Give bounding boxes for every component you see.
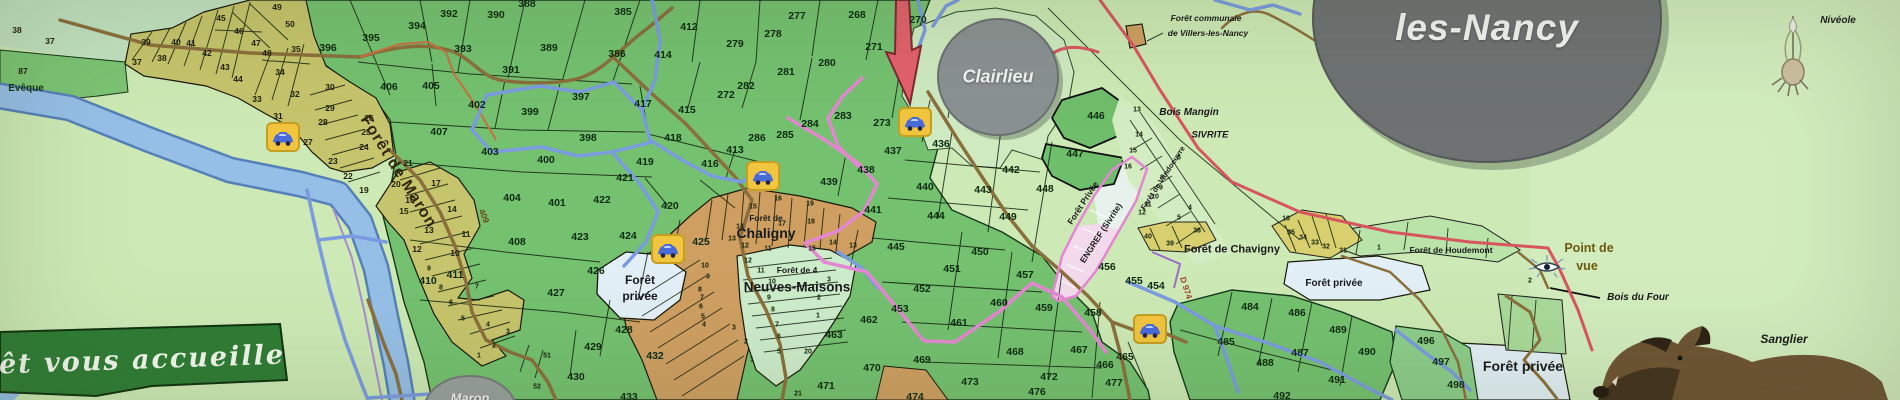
parcel-number: 286 bbox=[748, 133, 766, 144]
parking-icon bbox=[898, 107, 932, 137]
parcel-number: 2 bbox=[817, 295, 821, 302]
parcel-number: 426 bbox=[587, 266, 605, 277]
welcome-banner-text: êt vous accueille bbox=[0, 340, 286, 381]
parcel-number: 7 bbox=[475, 284, 479, 291]
parcel-number: 399 bbox=[521, 107, 539, 118]
parcel-number: 418 bbox=[664, 133, 682, 144]
parcel-number: 496 bbox=[1417, 336, 1435, 347]
car-icon bbox=[270, 127, 296, 147]
parcel-number: 273 bbox=[873, 118, 891, 129]
parcel-number: 2 bbox=[492, 343, 496, 350]
parking-icon bbox=[266, 122, 300, 152]
parcel-number: 14 bbox=[1135, 132, 1143, 139]
parcel-number: 398 bbox=[579, 133, 597, 144]
parcel-number: 11 bbox=[757, 268, 764, 275]
parcel-number: 447 bbox=[1066, 149, 1084, 160]
parcel-number: 427 bbox=[547, 288, 565, 299]
parcel-number: 445 bbox=[887, 242, 905, 253]
parcel-number: 16 bbox=[1124, 164, 1132, 171]
parcel-number: 473 bbox=[961, 377, 979, 388]
parcel-number: 453 bbox=[891, 304, 909, 315]
parcel-number: 457 bbox=[1016, 270, 1034, 281]
parcel-number: 391 bbox=[502, 65, 520, 76]
parcel-number: 51 bbox=[543, 353, 551, 360]
parcel-number: 38 bbox=[12, 26, 21, 35]
parking-icon bbox=[746, 161, 780, 191]
parcel-number: 12 bbox=[412, 245, 421, 254]
parcel-number: 490 bbox=[1358, 347, 1376, 358]
parcel-number: 28 bbox=[318, 118, 327, 127]
map-label: Forêt de Houdemont bbox=[1409, 246, 1492, 255]
parcel-number: 400 bbox=[537, 155, 555, 166]
map-label: privée bbox=[622, 290, 657, 302]
parcel-number: 491 bbox=[1328, 375, 1346, 386]
parcel-number: 45 bbox=[216, 14, 225, 23]
parcel-number: 412 bbox=[680, 22, 698, 33]
parcel-number: 31 bbox=[273, 112, 282, 121]
parcel-number: 424 bbox=[619, 231, 637, 242]
map-label: Forêt de 4 bbox=[777, 266, 818, 275]
parcel-number: 428 bbox=[615, 325, 633, 336]
parcel-number: 24 bbox=[359, 143, 368, 152]
parcel-number: 40 bbox=[1144, 234, 1152, 241]
parcel-number: 439 bbox=[820, 177, 838, 188]
parcel-number: 20 bbox=[804, 349, 812, 356]
parcel-number: 466 bbox=[1096, 360, 1114, 371]
parcel-number: 281 bbox=[777, 67, 795, 78]
parcel-number: 2 bbox=[1528, 278, 1532, 285]
parcel-number: 46 bbox=[234, 27, 243, 36]
parcel-number: 34 bbox=[1299, 235, 1307, 242]
parcel-number: 13 bbox=[849, 243, 857, 250]
parcel-number: 450 bbox=[971, 247, 989, 258]
parcel-number: 422 bbox=[593, 195, 611, 206]
parcel-number: 476 bbox=[1028, 387, 1046, 398]
parcel-number: 449 bbox=[999, 212, 1017, 223]
parcel-number: 268 bbox=[848, 10, 866, 21]
parcel-number: 4 bbox=[702, 322, 706, 329]
map-label: Bois du Four bbox=[1607, 293, 1669, 303]
parcel-number: 438 bbox=[857, 165, 875, 176]
parcel-number: 33 bbox=[1311, 240, 1319, 247]
parcel-number: 32 bbox=[290, 90, 299, 99]
parcel-number: 474 bbox=[906, 392, 924, 400]
parcel-number: 48 bbox=[262, 49, 271, 58]
parcel-number: 405 bbox=[422, 81, 440, 92]
map-label: Forêt privée bbox=[1305, 279, 1362, 289]
parcel-number: 408 bbox=[508, 237, 526, 248]
parcel-number: 7 bbox=[775, 322, 779, 329]
parcel-number: 448 bbox=[1036, 184, 1054, 195]
parcel-number: 5 bbox=[777, 349, 781, 356]
parcel-number: 32 bbox=[1322, 244, 1330, 251]
parcel-number: 1 bbox=[816, 313, 820, 320]
parcel-number: 22 bbox=[343, 172, 352, 181]
parcel-number: 50 bbox=[285, 20, 294, 29]
parcel-number: 436 bbox=[932, 139, 950, 150]
map-label: Forêt bbox=[625, 274, 655, 286]
car-icon bbox=[750, 166, 776, 186]
parcel-number: 413 bbox=[726, 145, 744, 156]
parcel-number: 411 bbox=[447, 270, 464, 281]
parcel-number: 282 bbox=[737, 81, 755, 92]
parcel-number: 9 bbox=[767, 295, 771, 302]
parcel-number: 272 bbox=[717, 90, 735, 101]
parcel-number: 5 bbox=[701, 314, 705, 321]
parcel-number: 468 bbox=[1006, 347, 1024, 358]
parcel-number: 277 bbox=[788, 11, 806, 22]
car-icon bbox=[1137, 319, 1163, 339]
parcel-number: 441 bbox=[864, 205, 882, 216]
parcel-number: 8 bbox=[439, 285, 443, 292]
parcel-number: 462 bbox=[860, 315, 878, 326]
map-label: Point de bbox=[1564, 242, 1613, 255]
parcel-number: 443 bbox=[974, 185, 992, 196]
parcel-number: 486 bbox=[1288, 308, 1306, 319]
parcel-number: 30 bbox=[325, 83, 334, 92]
parcel-number: 390 bbox=[487, 10, 505, 21]
parcel-number: 40 bbox=[171, 38, 180, 47]
parcel-number: 471 bbox=[817, 381, 835, 392]
parcel-number: 12 bbox=[744, 258, 752, 265]
map-label: Forêt de Maron bbox=[357, 113, 439, 231]
parcel-number: 452 bbox=[913, 284, 931, 295]
town-label-villers-les-nancy: les-Nancy bbox=[1395, 7, 1579, 49]
parcel-number: 17 bbox=[431, 179, 440, 188]
parcel-number: 397 bbox=[572, 92, 590, 103]
map-label: Forêt privée bbox=[1483, 359, 1563, 373]
parcel-number: 44 bbox=[233, 75, 242, 84]
parcel-number: 47 bbox=[251, 39, 260, 48]
parcel-number: 417 bbox=[634, 99, 652, 110]
parcel-number: 8 bbox=[698, 287, 702, 294]
map-label: Sanglier bbox=[1760, 333, 1807, 345]
parcel-number: 11 bbox=[462, 230, 471, 239]
parcel-number: 33 bbox=[252, 95, 261, 104]
map-label: Bois Mangin bbox=[1159, 108, 1218, 118]
parcel-number: 3 bbox=[732, 325, 736, 332]
town-label-clairlieu: Clairlieu bbox=[962, 67, 1033, 88]
parcel-number: 6 bbox=[449, 300, 453, 307]
parcel-number: 430 bbox=[567, 372, 585, 383]
parcel-number: 401 bbox=[548, 198, 566, 209]
parcel-number: 403 bbox=[481, 147, 499, 158]
parcel-number: 270 bbox=[909, 15, 927, 26]
parcel-number: 433 bbox=[620, 392, 638, 400]
parcel-number: 5 bbox=[461, 316, 465, 323]
parcel-number: 9 bbox=[427, 266, 431, 273]
parcel-number: 16 bbox=[1282, 216, 1290, 223]
map-label: Chaligny bbox=[736, 226, 795, 240]
car-icon bbox=[655, 239, 681, 259]
parcel-number: 402 bbox=[468, 100, 486, 111]
parcel-number: 385 bbox=[614, 7, 632, 18]
parcel-number: 14 bbox=[829, 240, 837, 247]
parcel-number: 7 bbox=[700, 295, 704, 302]
parcel-number: 38 bbox=[1193, 228, 1201, 235]
parcel-number: 39 bbox=[141, 38, 150, 47]
parcel-number: 461 bbox=[950, 318, 968, 329]
parcel-number: 455 bbox=[1125, 276, 1143, 287]
parcel-number: 386 bbox=[608, 49, 626, 60]
parcel-number: 1 bbox=[750, 357, 754, 364]
map-label: Forêt communale bbox=[1171, 14, 1242, 23]
parcel-number: 492 bbox=[1273, 391, 1291, 400]
parcel-number: 446 bbox=[1087, 111, 1105, 122]
parcel-number: 425 bbox=[692, 237, 710, 248]
parcel-number: 487 bbox=[1291, 348, 1309, 359]
parcel-number: 393 bbox=[454, 44, 472, 55]
parcel-number: 9 bbox=[706, 274, 710, 281]
forest-map-panel: Clairlieu les-Nancy Maron êt vous accuei… bbox=[0, 0, 1900, 400]
map-label: vue bbox=[1576, 260, 1598, 273]
parcel-number: 396 bbox=[319, 43, 337, 54]
parcel-number: 407 bbox=[430, 127, 448, 138]
parcel-number: 437 bbox=[884, 146, 902, 157]
parcel-number: 15 bbox=[399, 207, 408, 216]
parcel-number: 392 bbox=[440, 9, 458, 20]
car-icon bbox=[902, 112, 928, 132]
parcel-number: 271 bbox=[865, 42, 883, 53]
parcel-number: 423 bbox=[571, 232, 589, 243]
parcel-number: 459 bbox=[1035, 303, 1053, 314]
parcel-number: 280 bbox=[818, 58, 836, 69]
parcel-number: 10 bbox=[701, 263, 709, 270]
map-label: de Villers-les-Nancy bbox=[1168, 29, 1248, 38]
parcel-number: 465 bbox=[1116, 352, 1134, 363]
parcel-number: 421 bbox=[616, 173, 634, 184]
parcel-number: 278 bbox=[764, 29, 782, 40]
parcel-number: 488 bbox=[1256, 358, 1274, 369]
parcel-number: 414 bbox=[654, 50, 672, 61]
parcel-number: 37 bbox=[45, 37, 54, 46]
parcel-number: 389 bbox=[540, 43, 558, 54]
parcel-number: 2 bbox=[744, 339, 748, 346]
parcel-number: 442 bbox=[1002, 165, 1020, 176]
parcel-number: 1 bbox=[477, 353, 481, 360]
parcel-number: 15 bbox=[1129, 148, 1137, 155]
parcel-number: 429 bbox=[584, 342, 602, 353]
parcel-number: 420 bbox=[661, 201, 679, 212]
parcel-number: 444 bbox=[927, 211, 945, 222]
map-label: SIVRITE bbox=[1192, 130, 1229, 140]
map-label: Evêque bbox=[8, 84, 44, 94]
parcel-number: 35 bbox=[1287, 230, 1295, 237]
parcel-number: 440 bbox=[916, 182, 934, 193]
parcel-number: 4 bbox=[486, 322, 490, 329]
parcel-number: 472 bbox=[1040, 372, 1058, 383]
parcel-number: 456 bbox=[1098, 262, 1116, 273]
parcel-number: 27 bbox=[303, 138, 312, 147]
parcel-number: 469 bbox=[913, 355, 931, 366]
parcel-number: 485 bbox=[1217, 337, 1235, 348]
map-label: Neuves-Maisons bbox=[744, 280, 851, 294]
map-label: D 974 bbox=[1178, 276, 1193, 300]
parcel-number: 52 bbox=[533, 384, 541, 391]
parcel-number: 489 bbox=[1329, 325, 1347, 336]
parking-icon bbox=[651, 234, 685, 264]
parcel-number: 460 bbox=[990, 298, 1008, 309]
parcel-number: 11 bbox=[764, 246, 771, 253]
parcel-number: 1 bbox=[1377, 245, 1381, 252]
parcel-number: 10 bbox=[450, 249, 459, 258]
parcel-number: 19 bbox=[359, 186, 368, 195]
parcel-number: 497 bbox=[1432, 357, 1450, 368]
parcel-number: 388 bbox=[518, 0, 536, 9]
parcel-number: 6 bbox=[699, 304, 703, 311]
parcel-number: 3 bbox=[506, 329, 510, 336]
text-overlay: Clairlieu les-Nancy Maron êt vous accuei… bbox=[0, 0, 1900, 400]
parcel-number: 463 bbox=[825, 330, 843, 341]
parcel-number: 416 bbox=[701, 159, 719, 170]
town-label-maron: Maron bbox=[451, 391, 490, 400]
parcel-number: 8 bbox=[771, 307, 775, 314]
parcel-number: 23 bbox=[328, 157, 337, 166]
parcel-number: 42 bbox=[202, 49, 211, 58]
parcel-number: 34 bbox=[275, 68, 284, 77]
parcel-number: 404 bbox=[503, 193, 521, 204]
parcel-number: 49 bbox=[272, 3, 281, 12]
parcel-number: 484 bbox=[1241, 302, 1259, 313]
parcel-number: 15 bbox=[749, 204, 757, 211]
parcel-number: 279 bbox=[726, 39, 744, 50]
parcel-number: 458 bbox=[1084, 308, 1102, 319]
map-label: Forêt de Chavigny bbox=[1184, 245, 1280, 256]
parcel-number: 15 bbox=[808, 246, 816, 253]
parcel-number: 19 bbox=[806, 201, 814, 208]
parcel-number: 4 bbox=[1188, 205, 1192, 212]
parcel-number: 498 bbox=[1447, 380, 1465, 391]
parcel-number: 18 bbox=[807, 219, 815, 226]
parcel-number: 43 bbox=[220, 63, 229, 72]
parcel-number: 406 bbox=[380, 82, 398, 93]
map-label: 409 bbox=[477, 208, 490, 224]
map-label: ENGREF (Sivrite) bbox=[1079, 202, 1124, 265]
parcel-number: 12 bbox=[741, 243, 749, 250]
parcel-number: 5 bbox=[1177, 215, 1181, 222]
parcel-number: 41 bbox=[186, 39, 195, 48]
map-label: Forêt de bbox=[749, 214, 783, 223]
parcel-number: 87 bbox=[18, 67, 27, 76]
parcel-number: 6 bbox=[777, 334, 781, 341]
parcel-number: 394 bbox=[408, 21, 426, 32]
parcel-number: 415 bbox=[678, 105, 696, 116]
parcel-number: 451 bbox=[943, 264, 961, 275]
parcel-number: 470 bbox=[863, 363, 881, 374]
parking-icon bbox=[1133, 314, 1167, 344]
parcel-number: 21 bbox=[794, 391, 802, 398]
parcel-number: 31 bbox=[1339, 248, 1347, 255]
parcel-number: 16 bbox=[774, 196, 782, 203]
parcel-number: 37 bbox=[132, 58, 141, 67]
map-label: Forêt de Vandoeuvre bbox=[1140, 145, 1187, 211]
parcel-number: 285 bbox=[776, 130, 794, 141]
map-label: Forêt Privée bbox=[1066, 180, 1100, 226]
parcel-number: 14 bbox=[447, 205, 456, 214]
map-label: Nivéole bbox=[1820, 16, 1856, 26]
parcel-number: 410 bbox=[419, 276, 437, 287]
parcel-number: 432 bbox=[646, 351, 664, 362]
parcel-number: 284 bbox=[801, 119, 819, 130]
parcel-number: 419 bbox=[636, 157, 654, 168]
parcel-number: 35 bbox=[291, 45, 300, 54]
parcel-number: 395 bbox=[362, 33, 380, 44]
parcel-number: 13 bbox=[728, 236, 736, 243]
parcel-number: 39 bbox=[1166, 241, 1174, 248]
parcel-number: 477 bbox=[1105, 378, 1123, 389]
parcel-number: 454 bbox=[1147, 281, 1165, 292]
parcel-number: 29 bbox=[325, 104, 334, 113]
parcel-number: 13 bbox=[1133, 107, 1141, 114]
parcel-number: 467 bbox=[1070, 345, 1088, 356]
parcel-number: 38 bbox=[157, 54, 166, 63]
parcel-number: 283 bbox=[834, 111, 852, 122]
